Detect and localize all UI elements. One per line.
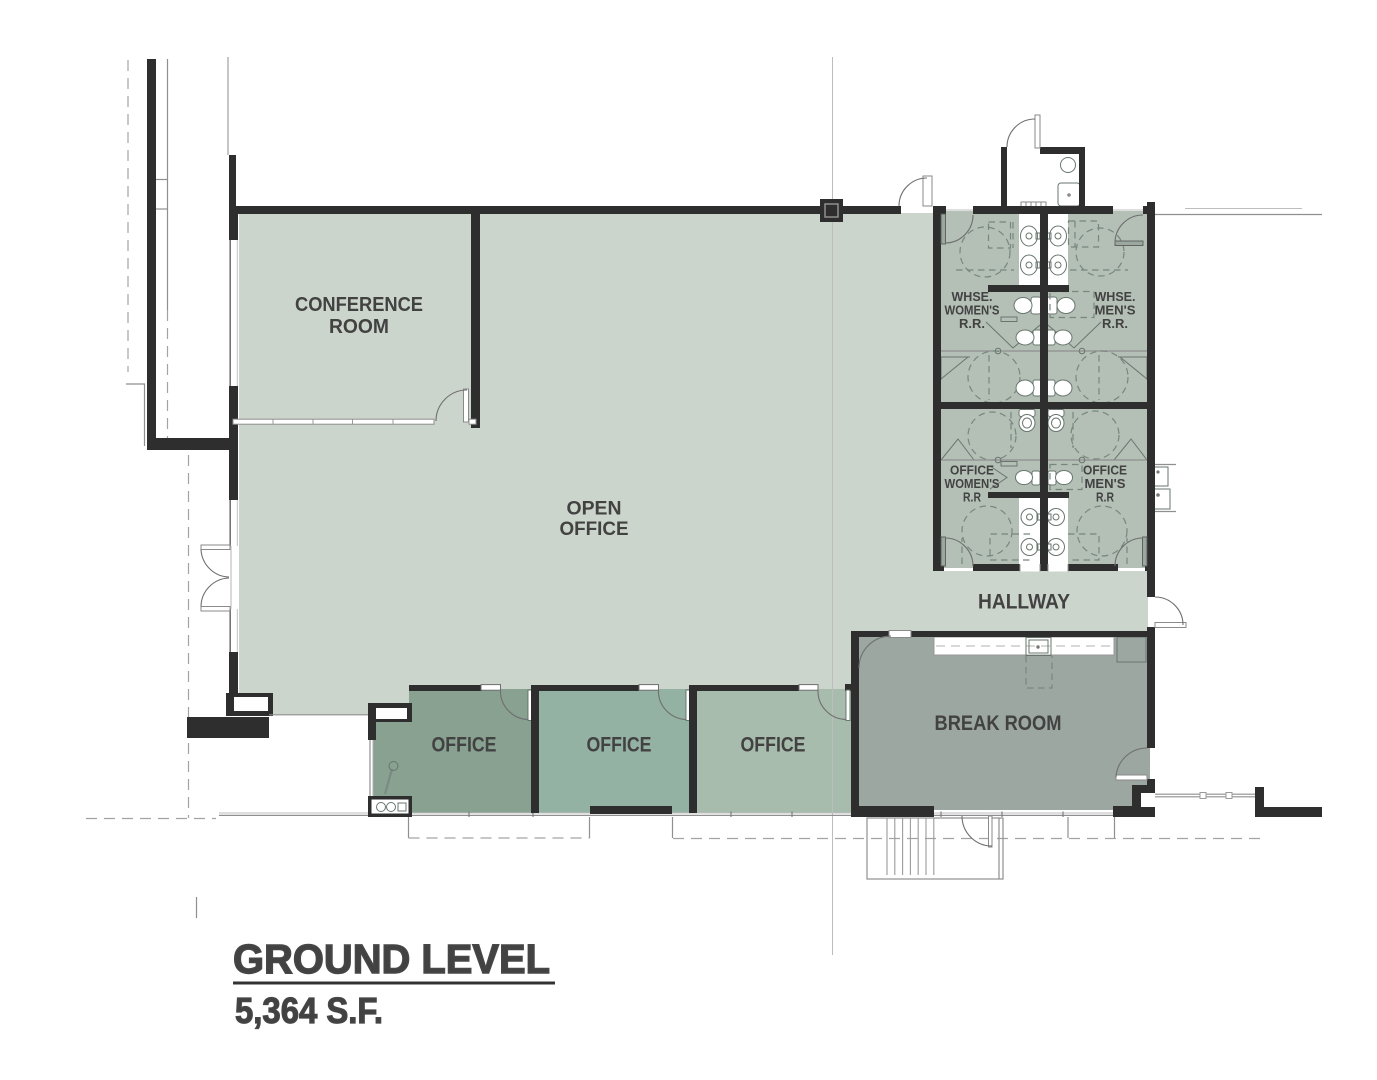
svg-text:MEN'S: MEN'S (1085, 477, 1126, 491)
svg-text:R.R.: R.R. (1102, 317, 1128, 331)
svg-text:5,364 S.F.: 5,364 S.F. (235, 990, 383, 1031)
svg-text:OFFICE: OFFICE (950, 464, 994, 478)
svg-text:ROOM: ROOM (329, 315, 389, 338)
svg-text:MEN'S: MEN'S (1095, 304, 1136, 318)
svg-text:WOMEN'S: WOMEN'S (945, 304, 1000, 318)
svg-text:R.R: R.R (963, 491, 981, 505)
svg-text:R.R: R.R (1096, 491, 1114, 505)
svg-text:R.R.: R.R. (959, 317, 985, 331)
svg-text:OFFICE: OFFICE (560, 518, 629, 540)
svg-text:WOMEN'S: WOMEN'S (945, 477, 1000, 491)
svg-text:GROUND LEVEL: GROUND LEVEL (233, 936, 550, 982)
svg-text:OFFICE: OFFICE (432, 734, 497, 757)
svg-text:OFFICE: OFFICE (741, 734, 806, 757)
svg-text:BREAK ROOM: BREAK ROOM (935, 712, 1062, 735)
svg-text:OFFICE: OFFICE (587, 734, 652, 757)
svg-text:WHSE.: WHSE. (1095, 290, 1136, 304)
svg-text:OFFICE: OFFICE (1083, 464, 1127, 478)
svg-text:OPEN: OPEN (567, 498, 622, 520)
svg-text:WHSE.: WHSE. (952, 290, 993, 304)
svg-text:CONFERENCE: CONFERENCE (295, 293, 423, 316)
svg-text:HALLWAY: HALLWAY (978, 591, 1070, 614)
